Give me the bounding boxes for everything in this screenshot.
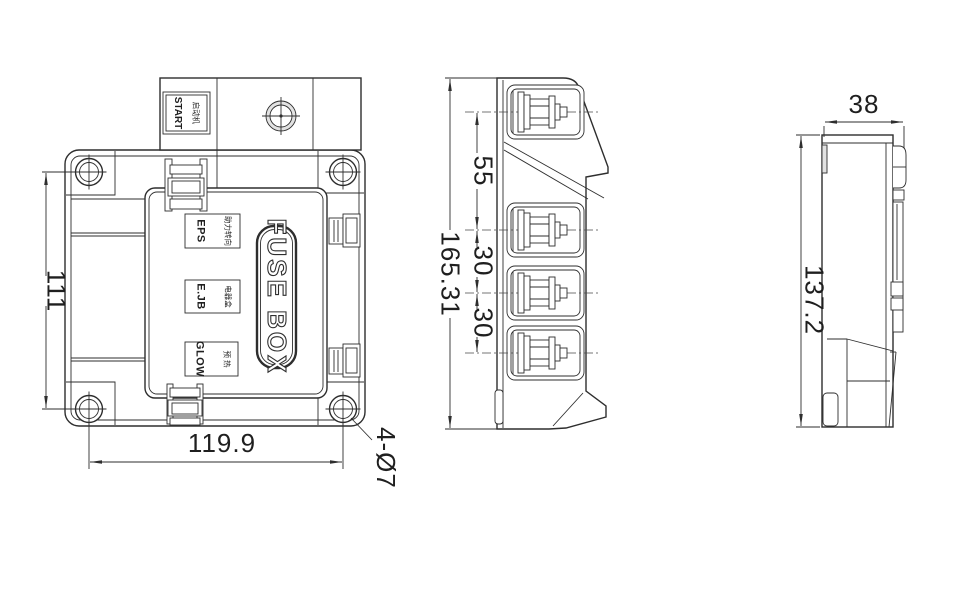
start-label-en: START — [172, 97, 183, 130]
eps-label-en: EPS — [194, 219, 206, 243]
dim-front-width: 119.9 — [89, 424, 343, 469]
ejb-label-cn: 电器盒 — [224, 285, 234, 308]
profile-edge-strip — [822, 145, 827, 173]
label-plate-glow: GLOW 预 热 — [185, 341, 238, 377]
eps-label-cn: 助力转向 — [224, 216, 234, 246]
dim-stud-gap-3: 30 — [469, 294, 499, 352]
dim-front-height-value: 111 — [42, 270, 72, 313]
fuse-box-label: FUSE BOX — [262, 219, 292, 376]
dim-stud-gap-1-value: 55 — [469, 156, 499, 187]
dim-hole-callout: 4-Ø7 — [351, 418, 401, 489]
label-plate-ejb: E.JB 电器盒 — [185, 280, 240, 313]
dim-hole-callout-value: 4-Ø7 — [371, 427, 401, 489]
latch-bottom — [167, 384, 203, 425]
start-label-plate: START 启动机 — [163, 92, 210, 134]
profile-view: 38 137.2 — [796, 89, 906, 427]
fuse-box-badge: FUSE BOX — [257, 219, 296, 376]
drawing-canvas: START 启动机 EPS 助力转向 E.JB 电器盒 GLOW 预 — [0, 0, 969, 592]
start-label-cn: 启动机 — [192, 102, 202, 125]
dim-profile-height-value: 137.2 — [800, 265, 830, 335]
latch-right-lower — [329, 344, 360, 377]
side-view: 165.31 55 30 30 — [436, 78, 608, 429]
glow-label-cn: 预 热 — [223, 350, 233, 368]
dim-stud-gap-3-value: 30 — [469, 308, 499, 339]
latch-right-upper — [329, 214, 360, 247]
glow-label-en: GLOW — [193, 341, 205, 377]
dim-stud-gap-2-value: 30 — [469, 246, 499, 277]
dim-stud-gap-1: 55 — [469, 113, 499, 229]
dim-front-width-value: 119.9 — [188, 428, 256, 458]
profile-right-features — [891, 146, 906, 332]
profile-body-outline — [822, 135, 893, 427]
ejb-label-en: E.JB — [194, 283, 206, 309]
dim-stud-gap-2: 30 — [469, 231, 499, 292]
label-plate-eps: EPS 助力转向 — [185, 214, 240, 248]
front-view: START 启动机 EPS 助力转向 E.JB 电器盒 GLOW 预 — [42, 78, 401, 489]
latch-top — [165, 159, 207, 211]
fuse-box-technical-drawing: START 启动机 EPS 助力转向 E.JB 电器盒 GLOW 预 — [0, 0, 969, 592]
dim-side-overall-height-value: 165.31 — [436, 231, 466, 317]
dim-profile-depth-value: 38 — [849, 89, 880, 119]
